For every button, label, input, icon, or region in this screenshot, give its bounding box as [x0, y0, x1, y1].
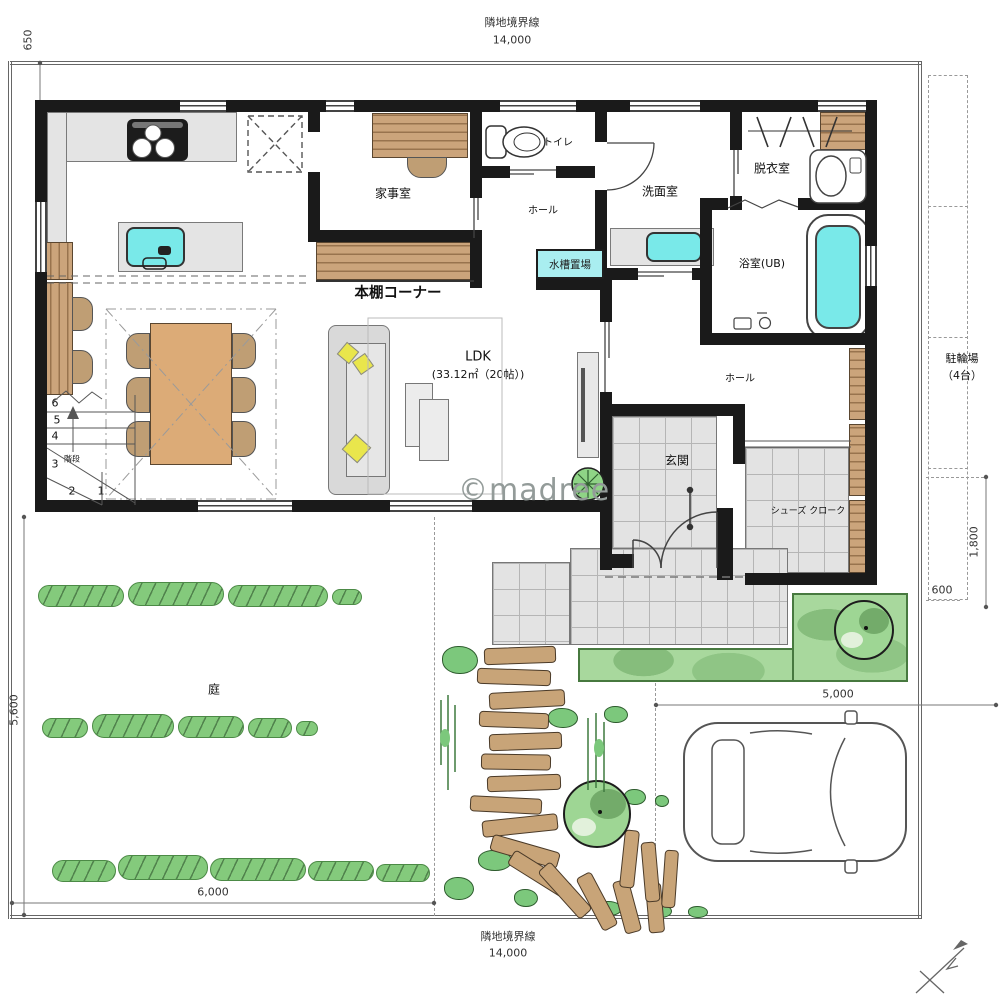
window [35, 202, 47, 272]
wall [35, 100, 877, 112]
grass-leaf [440, 729, 450, 747]
bush [444, 877, 474, 900]
bush [655, 795, 669, 807]
boundary-line-right [918, 61, 922, 919]
site-guide-dashed [434, 517, 435, 916]
stepping-stone [661, 850, 679, 909]
bush [442, 646, 478, 674]
shrub [308, 861, 374, 881]
room-label-ldk: LDK [465, 350, 491, 365]
stepping-stone [640, 841, 660, 902]
bike-capacity-label: （4台） [942, 367, 982, 383]
window [630, 100, 700, 112]
toilet-icon [486, 126, 545, 158]
stair-step-number: 2 [69, 485, 76, 498]
dining-chair [126, 333, 150, 369]
dining-chair [126, 421, 150, 457]
stair-step-number: 3 [52, 458, 59, 471]
wall [612, 404, 745, 416]
wall [717, 508, 733, 580]
room-label-datsuishitsu: 脱衣室 [754, 160, 790, 177]
washing-machine-icon [810, 150, 866, 203]
dining-table [150, 323, 232, 465]
wall [700, 198, 712, 345]
approach-tiles [492, 562, 570, 645]
window [180, 100, 226, 112]
wall [730, 196, 742, 210]
stepping-stone [487, 774, 562, 793]
bathtub [815, 225, 861, 329]
stepping-stone [619, 829, 640, 888]
dim-5600: 5,600 [8, 694, 21, 726]
room-label-hondana: 本棚コーナー [355, 282, 442, 303]
stairs-lines [47, 391, 135, 505]
stepping-stone [489, 689, 566, 710]
shrub [178, 716, 244, 738]
dining-chair [232, 421, 256, 457]
watermark: ©madree [458, 473, 610, 508]
room-label-genkan: 玄関 [665, 452, 689, 469]
stair-step-number: 6 [52, 397, 59, 410]
wall [733, 416, 745, 464]
wall [35, 100, 47, 512]
room-label-hall-lower: ホール [725, 370, 755, 385]
shrub [228, 585, 328, 607]
desk-chair [407, 157, 447, 178]
dim-1800: 1,800 [968, 526, 981, 558]
lawn-strip-left [578, 648, 794, 682]
overhead-cabinet-line [47, 276, 308, 283]
stair-step-number: 1 [98, 485, 105, 498]
north-arrow-icon [916, 940, 968, 993]
bath-accessories-icon [734, 313, 771, 329]
boundary-line-left [8, 61, 12, 919]
room-label-parking: 駐車場 [792, 783, 828, 800]
shrub [38, 585, 124, 607]
window [865, 246, 877, 286]
room-label-bathroom: 浴室(UB) [739, 255, 785, 271]
stepping-stone [477, 668, 552, 687]
wall [595, 112, 607, 142]
shrub [376, 864, 430, 882]
window [326, 100, 354, 112]
shrub [332, 589, 362, 605]
stepping-stone [479, 711, 550, 729]
room-label-senmenshitsu: 洗面室 [642, 183, 678, 200]
tv [581, 368, 585, 442]
boundary-dim-bottom: 14,000 [489, 947, 528, 960]
stair-step-number: 5 [54, 414, 61, 427]
stairs-up-arrow [67, 406, 79, 419]
stepping-stone [484, 646, 557, 666]
window [198, 500, 292, 512]
shrub [92, 714, 174, 738]
boundary-line-bottom [10, 915, 922, 919]
grass-leaf [594, 739, 604, 757]
wall [308, 230, 482, 242]
aquarium-label: 水槽置場 [549, 257, 591, 272]
vanity-sink [646, 232, 702, 262]
wall [536, 278, 612, 290]
dining-chair [232, 333, 256, 369]
boundary-dim-top: 14,000 [493, 34, 532, 47]
room-label-ldk-area: (33.12㎡（20帖）) [432, 366, 525, 382]
window [818, 100, 866, 112]
counter-chair [72, 350, 93, 384]
bookshelf [316, 242, 474, 280]
kitchen-sink [126, 227, 185, 267]
bike-dim-tick [926, 600, 960, 601]
bike-stall-divider [928, 206, 968, 207]
linen-shelf [820, 112, 870, 150]
shrub [248, 718, 292, 738]
dim-6000: 6,000 [197, 886, 229, 899]
room-label-toilet: トイレ [543, 134, 573, 149]
dining-chair [126, 377, 150, 413]
tree-icon [564, 781, 630, 847]
wall [798, 198, 877, 210]
stair-step-number: 4 [52, 430, 59, 443]
room-label-kaidan: 階段 [64, 454, 80, 465]
wall [556, 166, 595, 178]
shrub [118, 855, 208, 880]
boundary-label-bottom: 隣地境界線 [481, 928, 536, 944]
bush [624, 789, 646, 805]
wall [482, 166, 510, 178]
room-label-shoes: シューズ クローク [771, 504, 845, 517]
bike-dim-tick [926, 477, 984, 478]
lawn-strip-right [792, 593, 908, 682]
shrub [42, 718, 88, 738]
bike-stall-divider [928, 337, 968, 338]
coffee-table [419, 399, 449, 461]
bush [548, 708, 578, 728]
dim-650: 650 [22, 30, 35, 51]
bush [688, 906, 708, 918]
wall [600, 554, 634, 568]
shrub [52, 860, 116, 882]
dim-5000: 5,000 [822, 688, 854, 701]
bike-stall-divider [928, 468, 968, 469]
stepping-stone [489, 732, 563, 752]
shrub [128, 582, 224, 606]
wall [730, 112, 742, 150]
window [500, 100, 576, 112]
room-label-garden: 庭 [208, 681, 220, 698]
refrigerator-symbol [248, 116, 302, 172]
stepping-stone [481, 753, 551, 770]
boundary-line-top [10, 61, 922, 65]
boundary-label-top: 隣地境界線 [485, 14, 540, 30]
stepping-stone [481, 813, 558, 838]
kitchen-counter-top [47, 112, 237, 162]
shrub [210, 858, 306, 881]
wall [700, 333, 877, 345]
bike-parking-label: 駐輪場 [946, 350, 979, 366]
room-label-kajishitsu: 家事室 [375, 185, 411, 202]
wall [470, 112, 482, 198]
room-label-hall-upper: ホール [528, 202, 558, 217]
counter-chair [72, 297, 93, 331]
bush [604, 706, 628, 723]
floor-plan: 隣地境界線 14,000 隣地境界線 14,000 650 5,600 6,00… [0, 0, 1000, 1000]
wall [600, 290, 612, 322]
shrub [296, 721, 318, 736]
dining-chair [232, 377, 256, 413]
aquarium-niche: 水槽置場 [536, 249, 604, 279]
wall [745, 573, 877, 585]
wall [308, 112, 320, 132]
utility-desk [372, 113, 468, 158]
stepping-stone [470, 795, 543, 815]
bush [514, 889, 538, 907]
